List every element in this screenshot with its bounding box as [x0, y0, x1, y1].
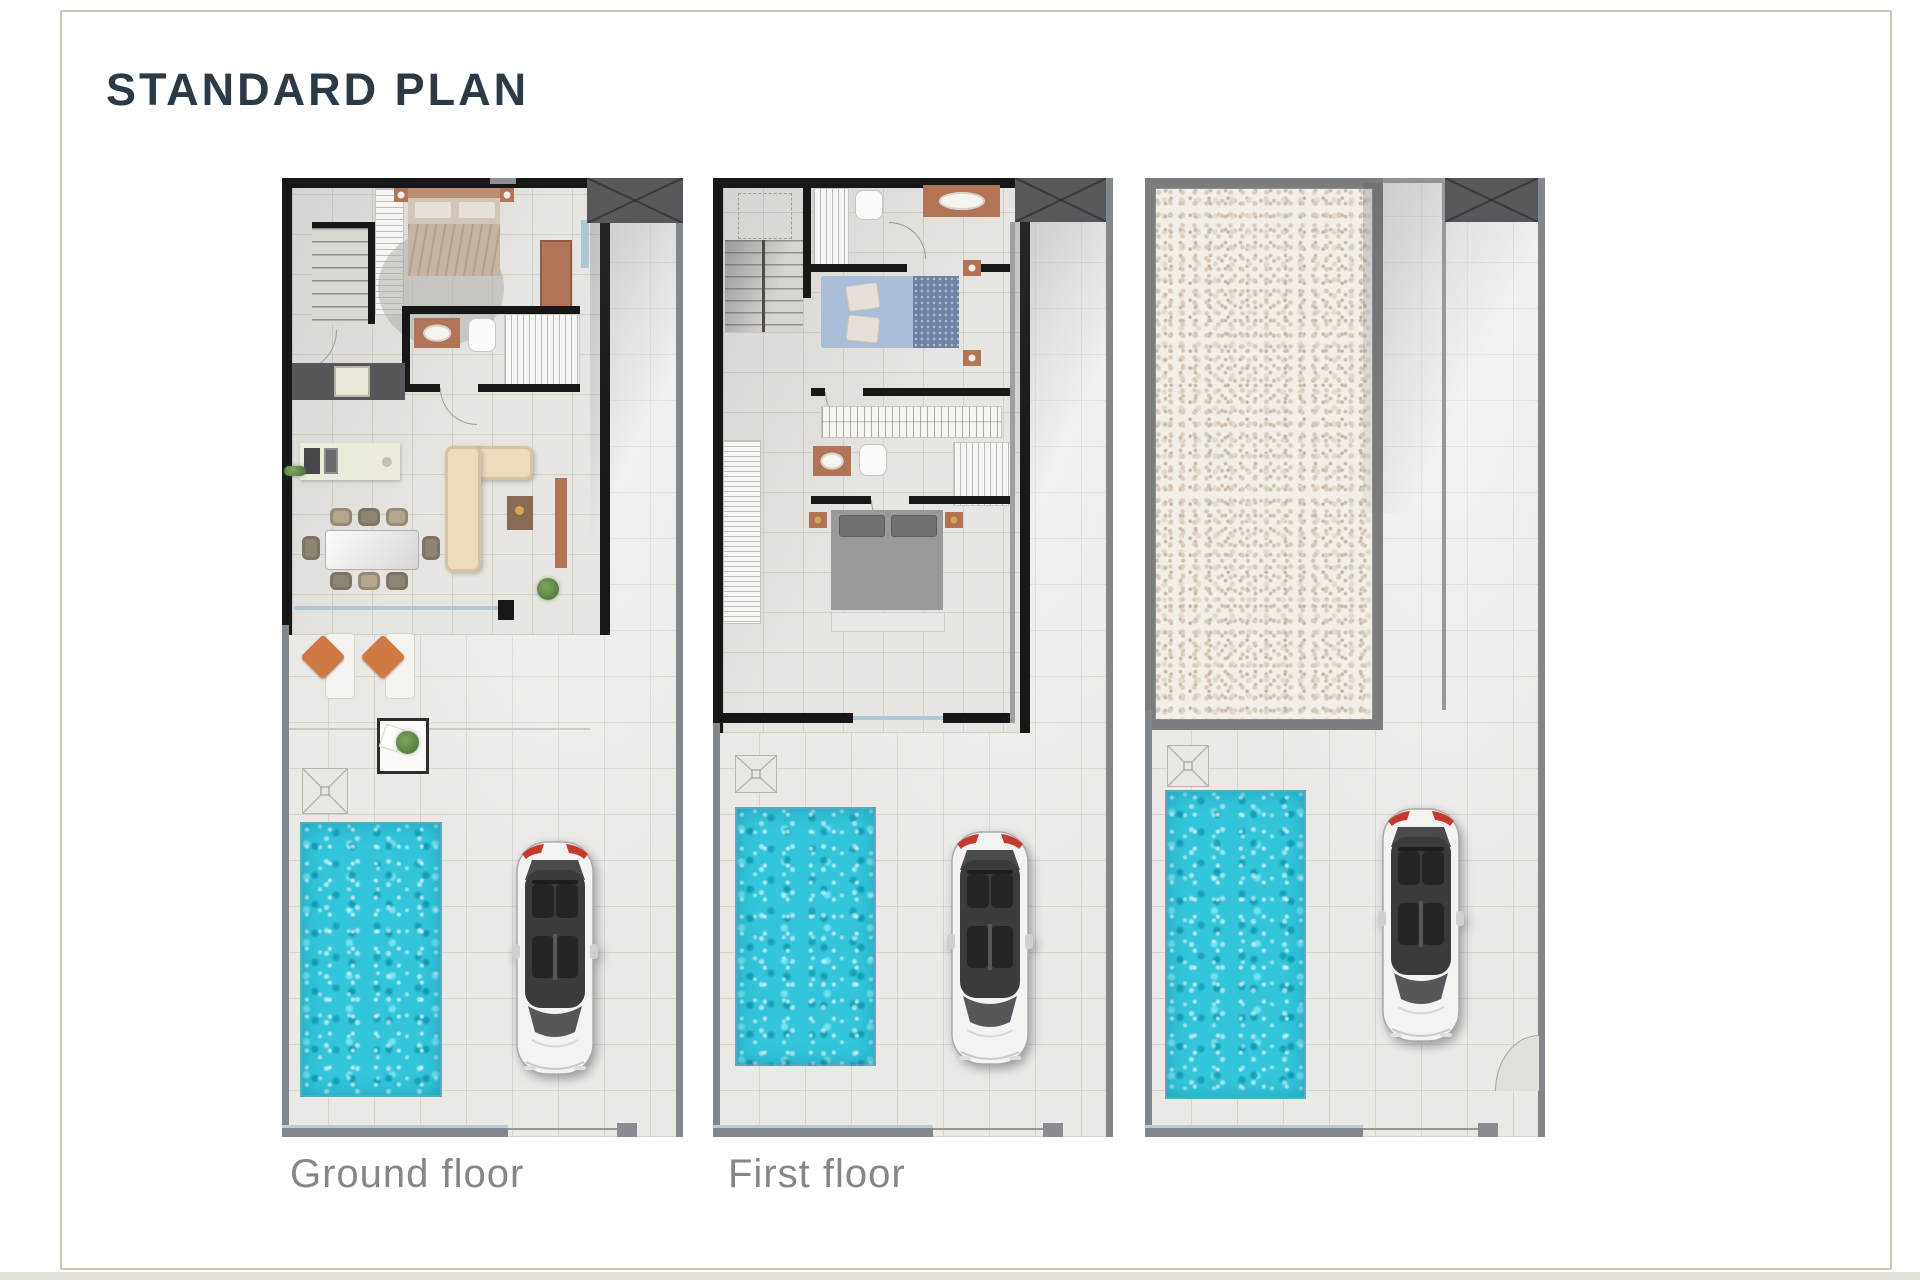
dining-chair	[358, 572, 380, 590]
entrance-canopy	[1015, 178, 1107, 222]
swimming-pool	[300, 822, 442, 1097]
floor-plan-first	[713, 178, 1113, 1137]
bed-pillow	[458, 201, 496, 219]
stair-void	[738, 193, 792, 239]
kitchen-sink-module	[334, 366, 370, 397]
kitchen-island	[300, 443, 400, 480]
nightstand	[394, 188, 408, 202]
stair-rail	[762, 240, 765, 332]
dining-chair	[330, 572, 352, 590]
wardrobe-rail	[821, 406, 1002, 438]
dining-chair	[386, 508, 408, 526]
hall-wardrobe	[723, 440, 761, 624]
walkway-shadow	[1363, 183, 1545, 513]
interior-wall	[402, 306, 580, 314]
bed-headboard	[408, 188, 500, 198]
nightstand	[500, 188, 514, 202]
window-right-wall	[581, 220, 589, 268]
side-yard-shadow	[1010, 222, 1106, 582]
potted-plant	[396, 731, 419, 754]
bed-pillow	[839, 515, 885, 537]
facade-wall	[943, 713, 1010, 723]
dining-chair	[330, 508, 352, 526]
sliding-glass-wall	[294, 606, 498, 610]
dining-chair	[386, 572, 408, 590]
interior-wall	[803, 188, 811, 298]
boundary-wall-right	[1538, 178, 1545, 1137]
island-sink	[382, 457, 392, 467]
gate-swing-arc	[1495, 1035, 1539, 1091]
interior-wall	[909, 496, 1010, 504]
dining-table	[325, 530, 419, 570]
interior-wall	[410, 384, 440, 392]
bed-blanket	[408, 224, 500, 276]
nightstand	[963, 350, 981, 366]
boundary-wall-right	[676, 223, 683, 1137]
swimming-pool	[1165, 790, 1306, 1099]
bathroom-sink-vanity	[923, 185, 1000, 217]
plan-label-ground: Ground floor	[290, 1152, 524, 1197]
bedspread-pattern	[913, 276, 959, 348]
interior-wall	[811, 264, 907, 272]
indoor-plant	[537, 578, 559, 600]
parked-car	[947, 828, 1033, 1068]
side-wall-line	[1442, 178, 1446, 710]
outdoor-shower-pad	[1167, 745, 1209, 787]
stove	[304, 448, 320, 474]
boundary-wall-bottom	[713, 1125, 933, 1137]
nightstand-lamp	[945, 512, 963, 528]
boundary-wall-bottom	[1145, 1125, 1363, 1137]
toilet	[855, 190, 883, 220]
side-table	[507, 496, 533, 530]
double-bed	[408, 188, 500, 276]
bed-foot-bench	[831, 612, 945, 632]
interior-wall	[863, 388, 1010, 396]
swimming-pool	[735, 807, 876, 1066]
toilet	[859, 444, 887, 476]
bed-pillow	[891, 515, 937, 537]
double-bed-gray	[831, 510, 943, 630]
dining-chair	[422, 536, 440, 560]
dining-chair	[358, 508, 380, 526]
parked-car	[512, 838, 598, 1078]
interior-wall	[811, 496, 871, 504]
boundary-wall-left	[282, 625, 289, 1137]
bed-pillow	[845, 282, 880, 312]
facade-wall	[713, 713, 853, 723]
kitchen-plant	[284, 466, 306, 476]
dining-chair	[302, 536, 320, 560]
boundary-wall-left	[713, 723, 720, 1137]
driveway-line	[933, 1128, 1043, 1130]
paving-line	[289, 728, 590, 730]
gate-pillar	[1478, 1123, 1498, 1137]
boundary-wall-left	[1145, 710, 1152, 1137]
side-wall-line	[1010, 222, 1015, 723]
driveway-line	[1363, 1128, 1478, 1130]
cooktop	[324, 448, 338, 474]
side-yard-shadow	[590, 223, 676, 583]
tv-unit	[555, 478, 567, 568]
gate-pillar	[617, 1123, 637, 1137]
double-bed-blue	[821, 276, 959, 348]
interior-wall	[478, 384, 580, 392]
shower	[813, 188, 849, 266]
gravel-roof	[1145, 178, 1383, 730]
driveway-line	[508, 1128, 617, 1130]
sliding-glass-wall	[853, 716, 943, 720]
bathroom-sink-vanity	[813, 446, 851, 476]
candle	[515, 506, 524, 515]
outdoor-shower-pad	[735, 755, 777, 793]
document-page: STANDARD PLAN	[0, 0, 1920, 1280]
nightstand	[963, 260, 981, 276]
staircase	[312, 222, 375, 324]
interior-wall	[811, 388, 825, 396]
boundary-wall-right	[1106, 178, 1113, 1137]
shower	[504, 314, 580, 390]
toilet	[468, 318, 496, 352]
floor-plan-ground	[282, 178, 682, 1137]
outdoor-shower-pad	[302, 768, 348, 814]
bathroom-sink-vanity	[414, 318, 460, 348]
boundary-wall-bottom	[282, 1125, 508, 1137]
parked-car	[1378, 805, 1464, 1045]
sofa-section	[445, 446, 481, 572]
gate-pillar	[1043, 1123, 1063, 1137]
page-title: STANDARD PLAN	[106, 64, 529, 116]
entry-gate-top	[490, 178, 516, 184]
entrance-canopy	[587, 178, 683, 223]
entrance-canopy	[1445, 178, 1538, 222]
staircase	[725, 240, 803, 332]
wall-pillar	[498, 600, 514, 620]
floor-plan-roof	[1145, 178, 1545, 1137]
terrace-table	[377, 718, 429, 774]
photo-bottom-edge	[0, 1272, 1920, 1280]
bed-pillow	[846, 314, 881, 343]
nightstand-lamp	[809, 512, 827, 528]
bed-pillow	[414, 201, 452, 219]
plan-label-first: First floor	[728, 1152, 906, 1197]
kitchen-counter	[292, 363, 405, 400]
